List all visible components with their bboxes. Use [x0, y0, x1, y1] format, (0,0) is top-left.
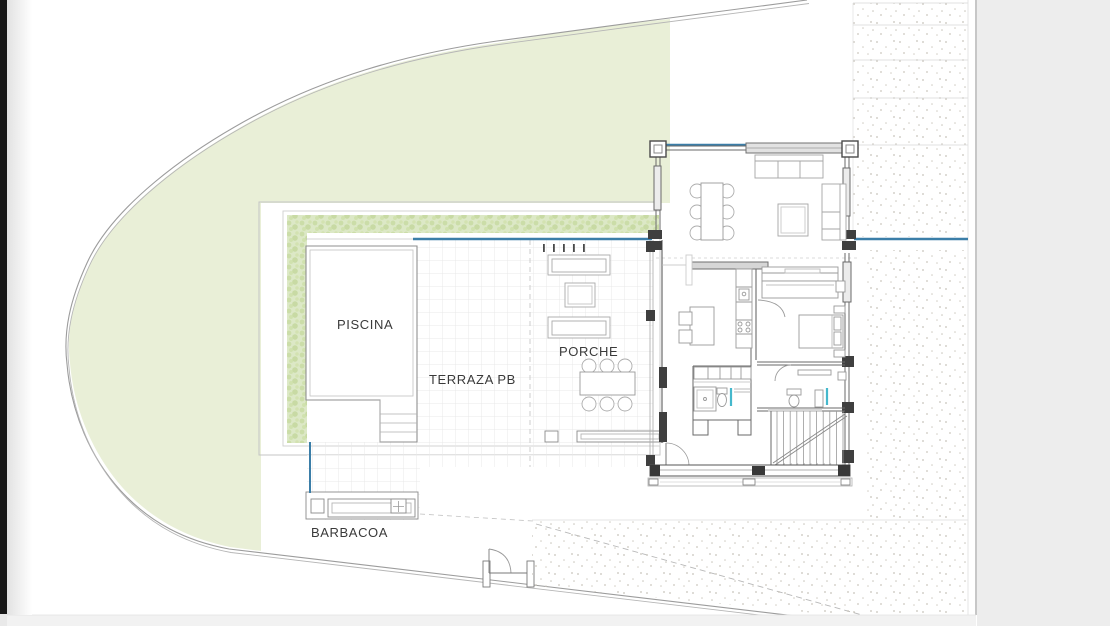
floor-plan: PISCINA TERRAZA PB PORCHE BARBACOA: [0, 0, 1110, 626]
left-edge-shadow: [7, 0, 32, 615]
label-barbacoa: BARBACOA: [311, 525, 388, 540]
south-glazing: [648, 465, 852, 486]
vanity: [694, 367, 751, 379]
dining-table: [701, 183, 723, 240]
toilet: [787, 389, 801, 395]
left-edge-bar-end: [0, 614, 7, 626]
kitchen-island: [690, 307, 714, 345]
sofa: [755, 155, 823, 178]
nightstand: [834, 306, 845, 313]
hedge-strip-left: [287, 215, 307, 443]
nightstand: [834, 350, 845, 357]
label-terraza: TERRAZA PB: [429, 372, 516, 387]
stool: [679, 312, 692, 325]
hedge-strip-top: [287, 215, 659, 233]
bottom-margin: [7, 615, 976, 626]
right-margin: [977, 0, 1110, 626]
stool: [679, 330, 692, 343]
vanity: [798, 370, 831, 375]
pillow-icon: [834, 332, 841, 345]
porch-dining-set: [580, 359, 635, 411]
label-piscina: PISCINA: [337, 317, 393, 332]
barbecue-counter: [306, 492, 418, 519]
left-edge-bar: [0, 0, 7, 614]
shower-column: [815, 390, 823, 407]
pillow-icon: [834, 317, 841, 330]
kitchen-sink-icon: [739, 289, 749, 300]
label-porche: PORCHE: [559, 344, 618, 359]
floor-plan-canvas: PISCINA TERRAZA PB PORCHE BARBACOA: [0, 0, 1110, 626]
